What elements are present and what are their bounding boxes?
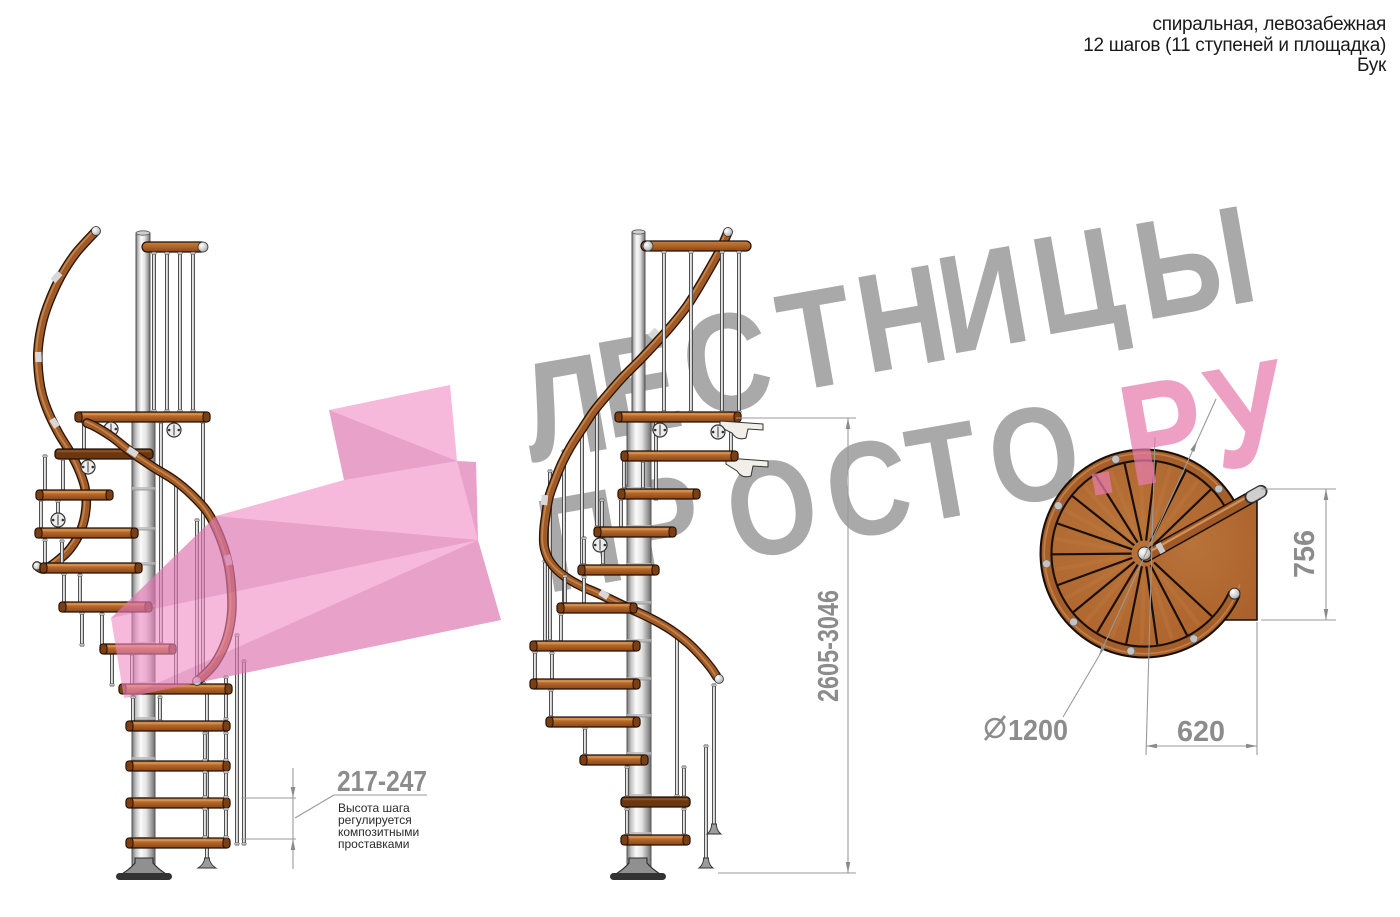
svg-text:620: 620 xyxy=(1177,716,1225,748)
svg-text:756: 756 xyxy=(1289,530,1321,578)
svg-text:2605-3046: 2605-3046 xyxy=(813,590,845,702)
svg-text:217-247: 217-247 xyxy=(337,766,427,798)
svg-text:1200: 1200 xyxy=(1008,715,1068,747)
svg-text:проставками: проставками xyxy=(338,837,409,851)
